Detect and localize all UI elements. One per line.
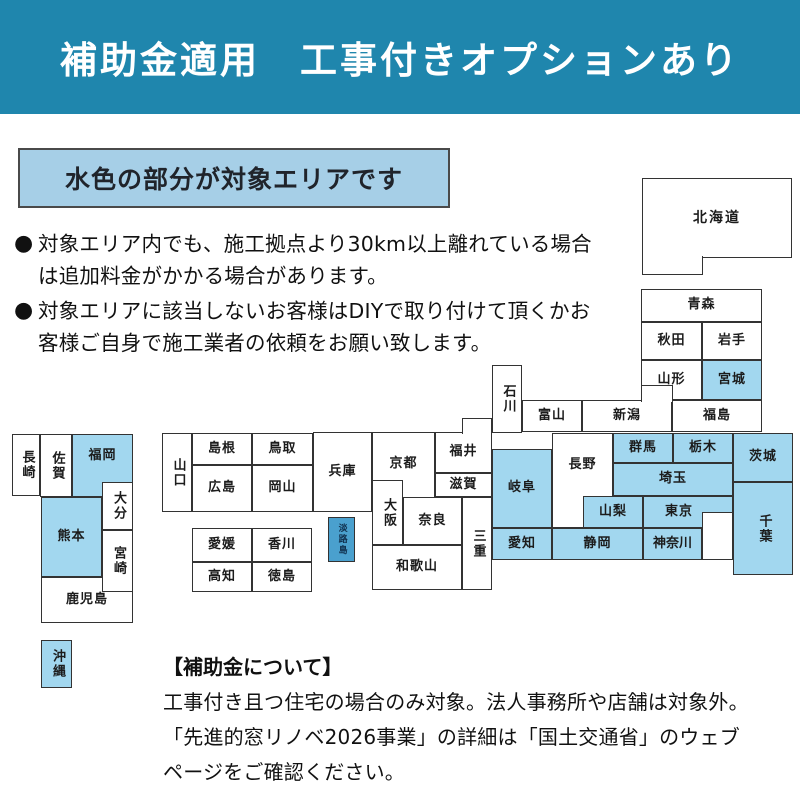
pref-osaka: 大阪 bbox=[372, 480, 403, 545]
pref-nara: 奈良 bbox=[403, 497, 462, 545]
pref-akita: 秋田 bbox=[641, 322, 702, 360]
pref-hyogo: 兵庫 bbox=[313, 432, 372, 512]
pref-yamanashi: 山梨 bbox=[583, 496, 643, 528]
island-awajishima: 淡路島 bbox=[328, 517, 355, 562]
pref-shizuoka: 静岡 bbox=[552, 528, 643, 560]
pref-toyama: 富山 bbox=[522, 400, 582, 432]
pref-miyazaki: 宮崎 bbox=[102, 530, 133, 592]
pref-ibaraki: 茨城 bbox=[733, 433, 793, 482]
pref-hokkaido: 北海道 bbox=[642, 178, 792, 258]
pref-kochi: 高知 bbox=[192, 562, 252, 592]
pref-tochigi: 栃木 bbox=[673, 433, 733, 463]
footer-line-3: ページをご確認ください。 bbox=[163, 755, 793, 790]
pref-ehime: 愛媛 bbox=[192, 528, 252, 562]
fukui-step-shape bbox=[462, 418, 492, 434]
footer-line-2: 「先進的窓リノベ2026事業」の詳細は「国土交通省」のウェブ bbox=[163, 720, 793, 755]
pref-okayama: 岡山 bbox=[252, 465, 313, 512]
pref-hiroshima: 広島 bbox=[192, 465, 252, 512]
pref-aomori: 青森 bbox=[641, 289, 762, 322]
tokyo-bay-shape bbox=[702, 512, 733, 560]
footer-line-1: 工事付き且つ住宅の場合のみ対象。法人事務所や店舗は対象外。 bbox=[163, 685, 793, 720]
subsidy-area-infographic: 補助金適用 工事付きオプションあり 水色の部分が対象エリアです ● 対象エリア内… bbox=[0, 0, 800, 800]
pref-saitama: 埼玉 bbox=[613, 463, 733, 496]
pref-wakayama: 和歌山 bbox=[372, 545, 462, 590]
pref-aichi: 愛知 bbox=[492, 528, 552, 560]
pref-iwate: 岩手 bbox=[702, 322, 762, 360]
pref-okinawa: 沖縄 bbox=[41, 640, 72, 688]
pref-miyagi: 宮城 bbox=[702, 360, 762, 400]
pref-saga: 佐賀 bbox=[40, 434, 72, 497]
pref-shiga: 滋賀 bbox=[435, 473, 492, 497]
pref-niigata: 新潟 bbox=[582, 400, 672, 432]
pref-tottori: 鳥取 bbox=[252, 433, 313, 465]
pref-oita: 大分 bbox=[102, 482, 133, 530]
pref-ishikawa: 石川 bbox=[492, 365, 522, 433]
pref-yamaguchi: 山口 bbox=[162, 433, 192, 512]
pref-shimane: 島根 bbox=[192, 433, 252, 465]
pref-tokushima: 徳島 bbox=[252, 562, 312, 592]
pref-kumamoto: 熊本 bbox=[41, 497, 102, 577]
pref-mie: 三重 bbox=[462, 497, 492, 590]
hokkaido-foot-shape bbox=[642, 256, 703, 275]
pref-fukushima: 福島 bbox=[672, 400, 762, 432]
niigata-step-shape bbox=[641, 385, 673, 402]
footer-heading: 【補助金について】 bbox=[163, 650, 793, 685]
pref-gunma: 群馬 bbox=[613, 433, 673, 463]
pref-kagawa: 香川 bbox=[252, 528, 312, 562]
pref-fukui: 福井 bbox=[435, 432, 492, 473]
pref-nagasaki: 長崎 bbox=[12, 434, 40, 496]
pref-kanagawa: 神奈川 bbox=[643, 528, 702, 560]
pref-chiba: 千葉 bbox=[733, 482, 793, 575]
subsidy-footer: 【補助金について】 工事付き且つ住宅の場合のみ対象。法人事務所や店舗は対象外。 … bbox=[163, 650, 793, 790]
pref-gifu: 岐阜 bbox=[492, 449, 552, 528]
